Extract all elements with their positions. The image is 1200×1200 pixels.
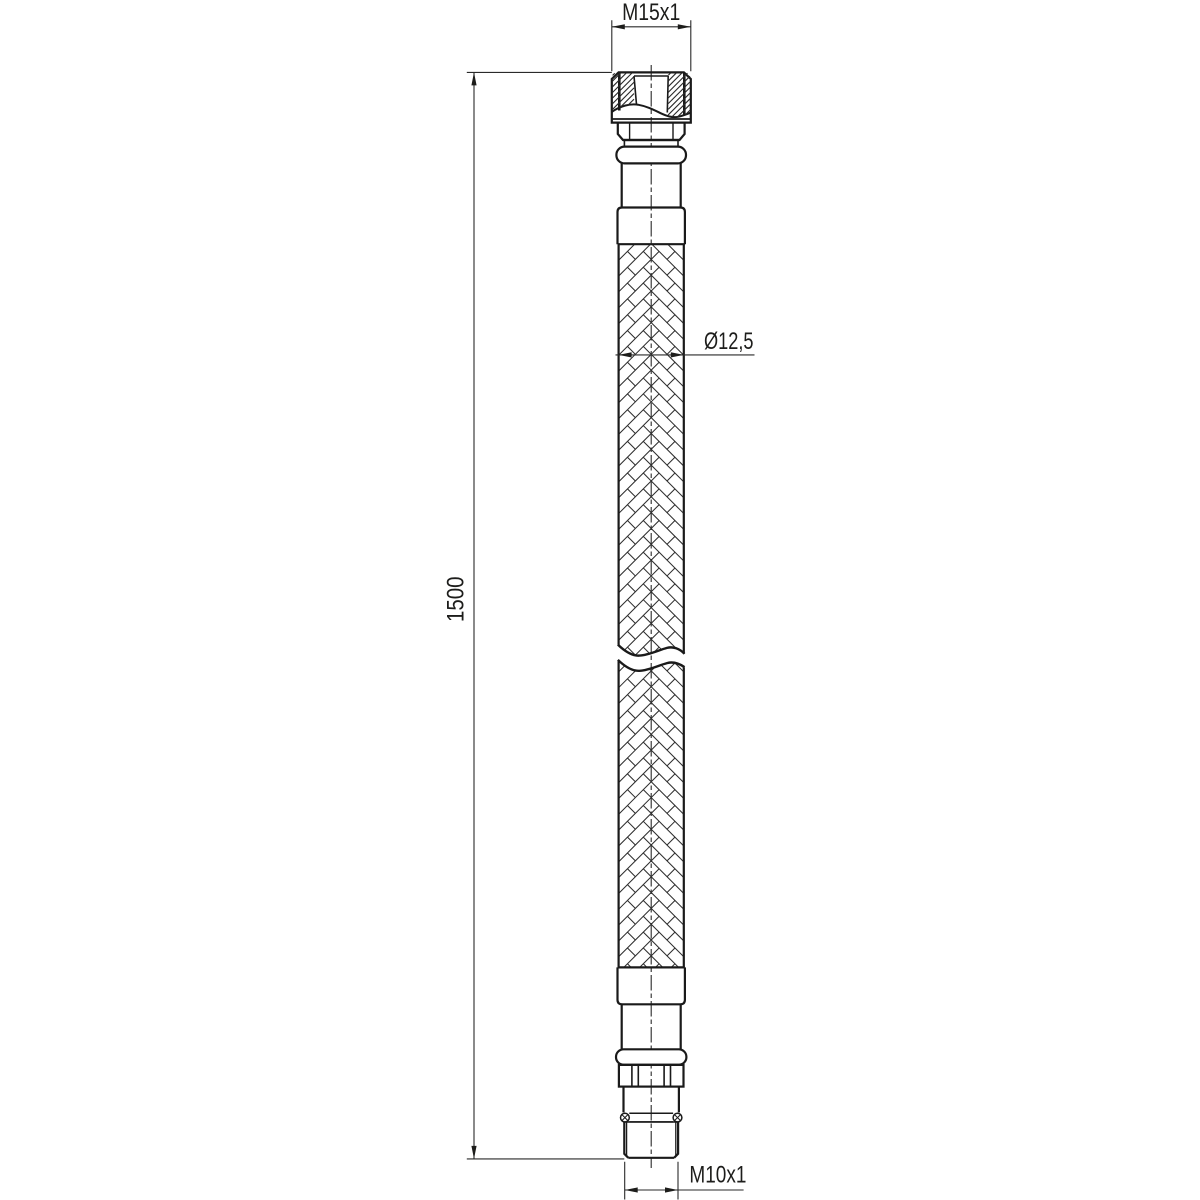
svg-text:Ø12,5: Ø12,5 (704, 329, 754, 355)
svg-text:M10x1: M10x1 (689, 1163, 746, 1189)
svg-text:1500: 1500 (444, 576, 470, 622)
svg-text:M15x1: M15x1 (622, 0, 680, 26)
